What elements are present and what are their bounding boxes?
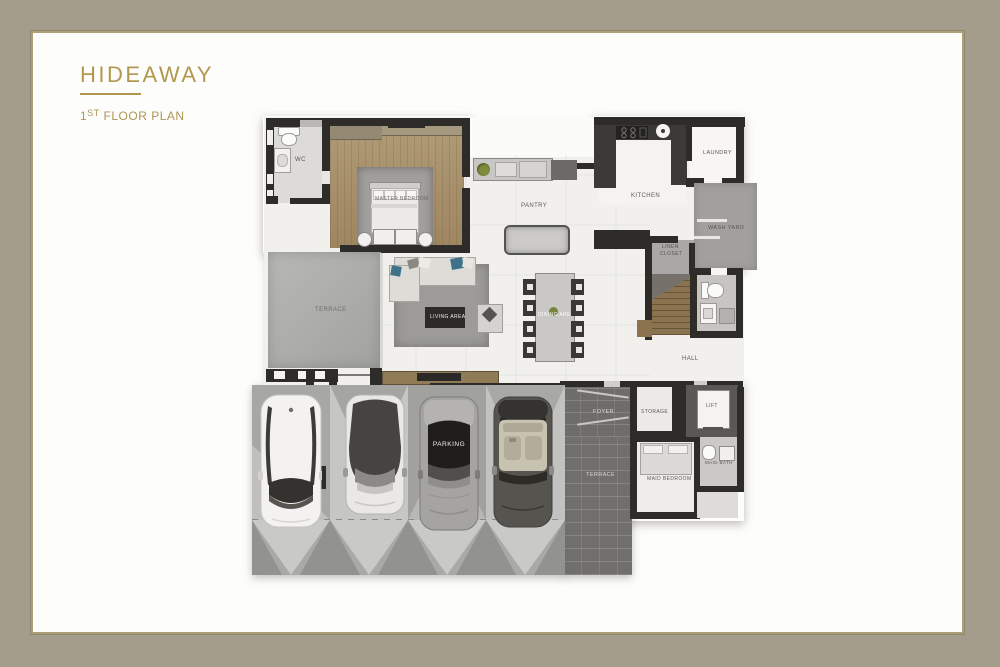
svg-text:PARKING: PARKING <box>433 441 465 448</box>
